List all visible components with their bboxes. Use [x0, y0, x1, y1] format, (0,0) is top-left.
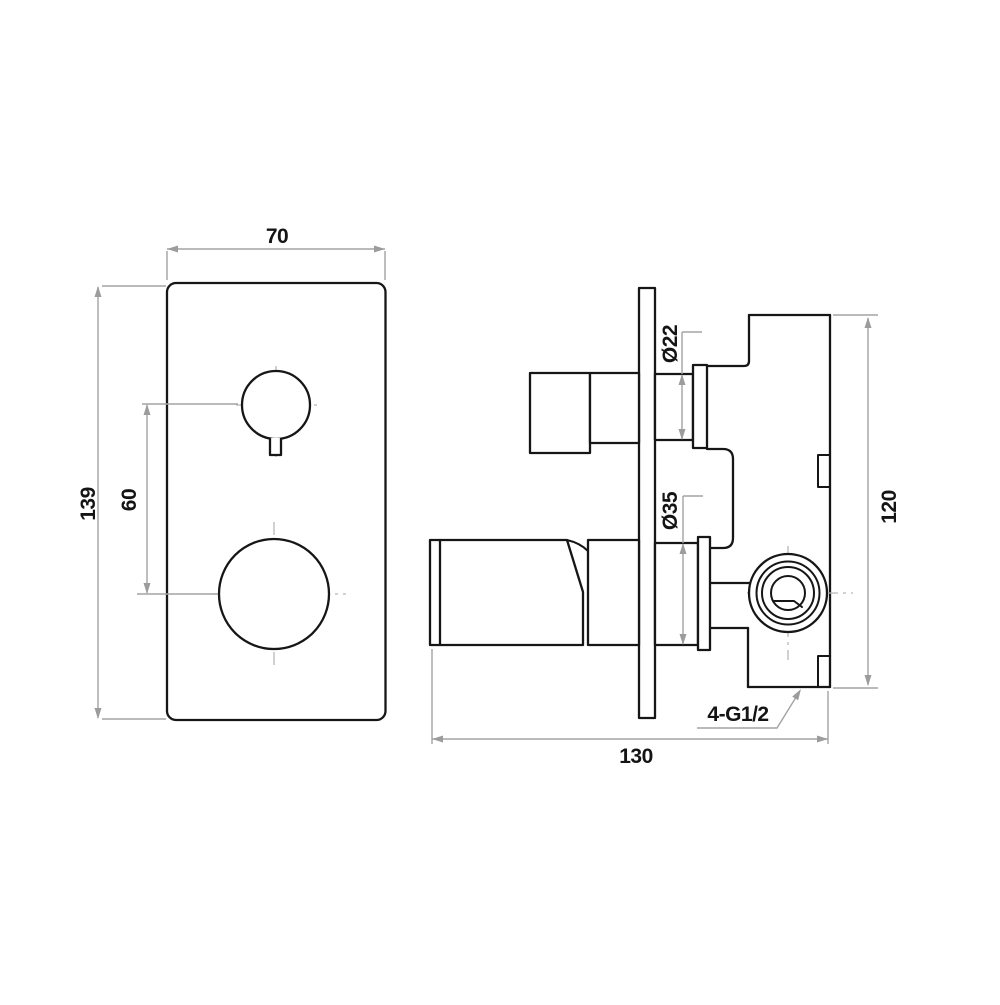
- side-upper-knob: [530, 373, 639, 453]
- arrowhead: [432, 736, 443, 743]
- dim-d22-value: Ø22: [659, 325, 682, 363]
- dim-139-value: 139: [77, 487, 100, 521]
- front-view: 70 139 60: [77, 225, 386, 720]
- arrowhead: [167, 246, 178, 253]
- dim-d35-value: Ø35: [659, 491, 682, 530]
- arrowhead: [144, 583, 151, 594]
- outlet-boss: [747, 546, 853, 660]
- thread-spec-value: 4-G1/2: [707, 703, 768, 726]
- body-side-port-upper: [818, 455, 830, 487]
- arrowhead: [817, 736, 828, 743]
- front-lower-knob: [219, 539, 329, 649]
- front-upper-knob: [242, 371, 310, 439]
- lower-stem: [655, 543, 698, 645]
- side-plate: [639, 288, 655, 718]
- arrowhead: [374, 246, 385, 253]
- mixer-valve-drawing: 70 139 60: [0, 0, 1000, 1000]
- dim-70-value: 70: [266, 225, 288, 248]
- arrowhead: [865, 317, 872, 328]
- upper-knob-lever-tab: [270, 438, 281, 455]
- arrowhead: [865, 675, 872, 686]
- body-side-port-lower: [818, 656, 830, 687]
- technical-drawing-page: 70 139 60: [0, 0, 1000, 1000]
- front-plate: [167, 283, 386, 720]
- leader-arrowhead: [792, 689, 801, 700]
- dim-130-value: 130: [619, 745, 653, 768]
- dimension-plate-width: 70: [167, 225, 385, 280]
- side-view: Ø22 Ø35 120 130: [430, 288, 901, 768]
- arrowhead: [95, 286, 102, 297]
- arrowhead: [95, 708, 102, 719]
- lower-flange: [698, 537, 710, 650]
- dim-60-value: 60: [118, 489, 141, 511]
- side-lower-knob: [430, 540, 639, 645]
- valve-body: [706, 315, 830, 687]
- arrowhead: [144, 404, 151, 415]
- dimension-body-height: 120: [833, 315, 901, 688]
- thread-callout: 4-G1/2: [697, 689, 801, 728]
- upper-flange: [693, 365, 707, 448]
- dim-120-value: 120: [878, 490, 901, 524]
- upper-stem: [655, 374, 693, 440]
